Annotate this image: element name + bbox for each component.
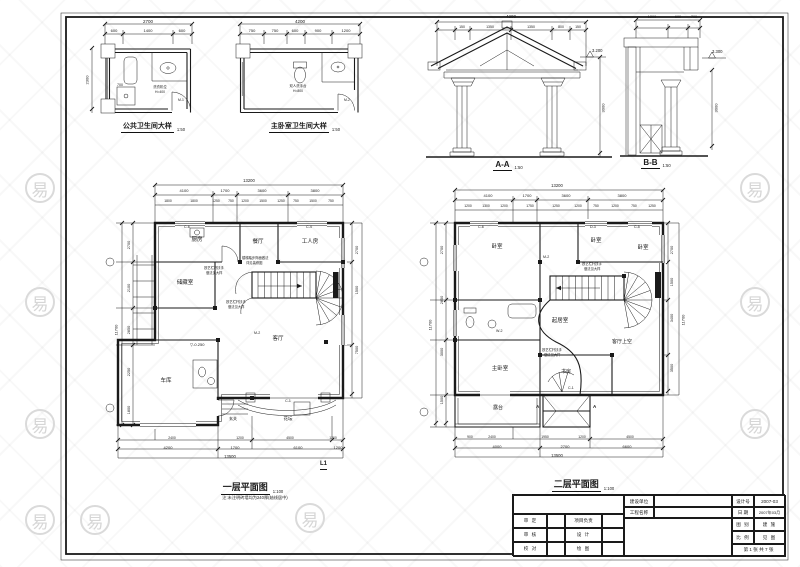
cad-text: 客厅	[272, 336, 283, 342]
cad-text: 1200	[648, 15, 656, 19]
cad-text: 13500	[224, 455, 236, 460]
cad-text: 150	[575, 25, 581, 29]
cad-text: 600	[292, 29, 299, 34]
tb-draw-label: 绘 图	[564, 541, 603, 557]
title-block: 审 定 项目负责 审 核 设 计 校 对 绘 图 建设单位 工程名称 设计号 2…	[512, 494, 785, 556]
cad-text: 1200	[241, 200, 249, 204]
cad-text: 750	[293, 200, 299, 204]
cad-text: 1750	[526, 205, 534, 209]
cad-text: 1500	[309, 200, 317, 204]
cad-text: M-2	[543, 255, 549, 259]
cad-text: 1300	[482, 205, 490, 209]
tb-sheet-number: 第 1 张 共 7 张	[731, 543, 786, 557]
cad-text: 书房	[561, 370, 571, 376]
cad-text: C-4	[306, 225, 312, 229]
cad-text: 1400	[144, 29, 153, 34]
cad-text: 做法见大样	[228, 306, 244, 310]
cad-text: A	[536, 404, 539, 409]
cad-text: 1250	[277, 200, 285, 204]
cad-text: 4200	[164, 446, 173, 451]
cad-text: 2700	[355, 246, 359, 254]
cad-text: 7500	[355, 346, 359, 354]
cad-text: 600	[675, 15, 681, 19]
cad-text: 11700	[682, 315, 687, 326]
cad-text: 13500	[551, 454, 563, 459]
cad-sheet: 易易易易易易易易易 公共卫生间大样 1:50 主卧室卫生间大样 1:50 A-A…	[0, 0, 800, 567]
cad-text: 主卧室	[492, 366, 509, 372]
cad-text: 做法见大样	[584, 268, 600, 272]
cad-text: 3800	[311, 189, 320, 194]
cad-text: 1200	[236, 437, 244, 441]
cad-text: 储藏室	[177, 280, 194, 286]
cad-text: 2100	[127, 284, 131, 292]
cad-text: 卧室	[491, 244, 502, 250]
cad-text: 做法见大样	[206, 272, 222, 276]
cad-text: 2250	[127, 368, 131, 376]
cad-text: 3400	[670, 314, 674, 322]
cad-text: 1500	[440, 396, 444, 404]
cad-text: 2700	[440, 246, 444, 254]
cad-text: 3600	[562, 194, 571, 199]
cad-text: 1800	[127, 406, 131, 414]
bath-master-scale: 1:50	[332, 127, 340, 133]
tb-empty-top	[513, 495, 625, 515]
cad-text: 1500	[355, 286, 359, 294]
cad-text: 4200	[506, 14, 516, 19]
cad-text: 玄关	[229, 417, 237, 422]
cad-text: 露台	[493, 406, 503, 412]
bath-master-title-text: 主卧室卫生间大样	[269, 121, 329, 133]
cad-text: 1800	[164, 200, 172, 204]
cad-text: 餐厅	[252, 239, 263, 245]
tb-proof-sign	[546, 541, 566, 557]
cad-text: 6100	[294, 446, 303, 451]
cad-text: 1350	[527, 25, 535, 29]
cad-text: 1200	[342, 29, 351, 34]
cad-text: 1200	[464, 205, 472, 209]
cad-text: 2400	[168, 437, 176, 441]
cad-text: 750	[272, 29, 279, 34]
cad-text: 4500	[626, 436, 634, 440]
cad-text: 3.200	[592, 49, 602, 54]
bath-master-title: 主卧室卫生间大样 1:50	[242, 121, 367, 133]
cad-text: D-3	[590, 225, 596, 229]
cad-text: 做法见大样	[544, 354, 560, 358]
cad-text: C-6	[184, 225, 190, 229]
cad-text: ▽-0.250	[190, 343, 204, 348]
cad-text: 客厅上空	[612, 340, 632, 346]
cad-text: 600	[179, 29, 186, 34]
cad-text: 11700	[429, 320, 434, 331]
cad-text: H=800	[293, 90, 303, 94]
cad-text: 1700	[523, 194, 532, 199]
cad-text: 4100	[180, 189, 189, 194]
tb-proof-label: 校 对	[513, 541, 548, 557]
cad-text: 1200	[574, 205, 582, 209]
cad-text: 1800	[190, 200, 198, 204]
cad-text: 1250	[212, 200, 220, 204]
cad-text: 3000	[440, 348, 444, 356]
plan-2f-title-text: 二层平面图	[552, 477, 601, 492]
cad-text: 2400	[488, 436, 496, 440]
cad-text: 卧室	[637, 245, 648, 251]
cad-text: 3600	[258, 189, 267, 194]
cad-text: 750	[249, 29, 256, 34]
cad-text: 3500	[670, 364, 674, 372]
cad-text: 3000	[715, 104, 720, 113]
cad-text: 1200	[578, 436, 586, 440]
cad-text: 1200	[500, 205, 508, 209]
cad-text: 6600	[623, 445, 632, 450]
bath-public-title-text: 公共卫生间大样	[121, 121, 174, 133]
section-a-scale: 1:50	[515, 165, 523, 171]
cad-text: 3800	[618, 194, 627, 199]
cad-text: M-2	[344, 99, 350, 103]
cad-text: M-2	[254, 331, 260, 335]
cad-text: 750	[631, 205, 637, 209]
cad-text: H=400	[155, 91, 165, 95]
cad-text: 2700	[561, 445, 570, 450]
cad-text: 150	[459, 25, 465, 29]
bath-public-scale: 1:50	[177, 127, 185, 133]
cad-text: 1700	[231, 446, 240, 451]
cad-text: A	[593, 404, 596, 409]
cad-text: 700	[117, 83, 123, 87]
section-b-title-text: B-B	[641, 158, 659, 169]
cad-text: 3.300	[712, 50, 722, 55]
plan-2f-title: 二层平面图 1:100	[528, 477, 638, 492]
cad-text: 1950	[541, 436, 549, 440]
cad-text: 1250	[648, 205, 656, 209]
cad-text: 1700	[221, 189, 230, 194]
cad-text: 1500	[670, 278, 674, 286]
section-b-linework	[620, 18, 726, 156]
cad-text: 4100	[484, 194, 493, 199]
cad-text: 1200	[334, 446, 343, 451]
cad-text: 厨房	[191, 237, 202, 243]
section-a-title: A-A 1:50	[478, 160, 538, 171]
section-b-title: B-B 1:50	[626, 158, 686, 169]
cad-text: 4500	[286, 437, 294, 441]
cad-text: W-2	[496, 329, 503, 333]
cad-text: 2700	[143, 19, 153, 24]
cad-text: 4000	[493, 445, 502, 450]
cad-text: 工人房	[302, 239, 319, 245]
cad-text: C-1	[568, 386, 574, 390]
cad-text: 750	[228, 200, 234, 204]
tb-draw-sign	[601, 541, 625, 557]
cad-text: 卧室	[590, 238, 601, 244]
cad-text: 车库	[160, 378, 171, 384]
bath-public-title: 公共卫生间大样 1:50	[103, 121, 203, 133]
cad-text: 1200	[329, 437, 337, 441]
cad-text: C-5	[634, 225, 640, 229]
cad-text: 900	[315, 29, 322, 34]
cad-text: 4200	[295, 19, 305, 24]
cad-text: 3000	[602, 104, 607, 113]
cad-text: 2850	[127, 326, 131, 334]
cad-text: 2700	[127, 241, 131, 249]
cad-text: 花坛	[284, 416, 293, 421]
cad-text: 1200	[611, 205, 619, 209]
cad-text: C-6	[478, 225, 484, 229]
section-a-title-text: A-A	[493, 160, 511, 171]
cad-text: 1250	[552, 205, 560, 209]
plan-2f-scale: 1:100	[604, 486, 614, 492]
section-b-scale: 1:50	[663, 163, 671, 169]
cad-text: 详见装修图	[246, 262, 262, 266]
cad-text: 750	[328, 200, 334, 204]
cad-text: 1500	[259, 200, 267, 204]
cad-text: 11700	[115, 325, 120, 336]
section-a-linework	[426, 20, 612, 157]
plan-1f-title: 一层平面图 1:100	[192, 480, 312, 495]
plan-2f-linework	[420, 188, 679, 457]
cad-text: 起居室	[552, 318, 569, 324]
cad-text: 600	[111, 29, 118, 34]
cad-text: M-1	[178, 99, 184, 103]
cad-text: 750	[593, 205, 599, 209]
cad-text: 1350	[486, 25, 494, 29]
cad-text: 2850	[440, 296, 444, 304]
plan-1f-note: 注:未注明砖墙均为240厚(轴线居中)	[165, 495, 345, 501]
cad-text: 13200	[243, 179, 255, 184]
cad-text: 2300	[86, 76, 91, 85]
tb-drawing-name-area	[623, 517, 733, 557]
cad-text: C-1	[285, 399, 291, 403]
cad-text: 700	[691, 15, 697, 19]
cad-text: 800	[558, 25, 564, 29]
plan-1f-title-text: 一层平面图	[221, 480, 270, 495]
cad-text: L1	[320, 461, 327, 470]
cad-text: 2700	[670, 246, 674, 254]
cad-text: 900	[467, 436, 473, 440]
cad-text: 13200	[551, 184, 563, 189]
